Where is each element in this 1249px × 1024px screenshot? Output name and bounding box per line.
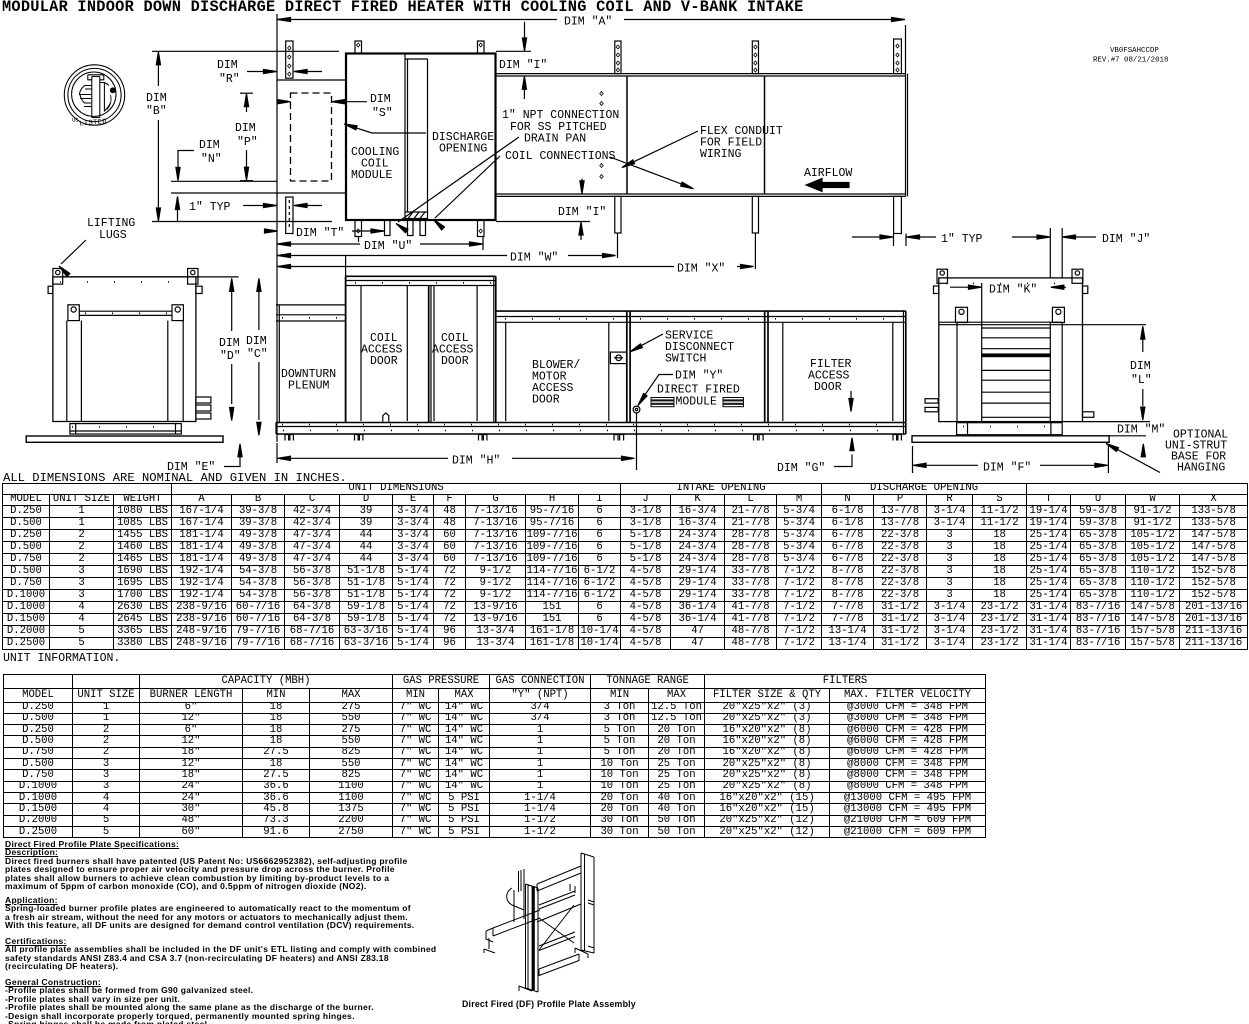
svg-text:DIM: DIM (219, 337, 240, 350)
svg-text:DOOR: DOOR (370, 355, 398, 368)
svg-text:VB0FSAHCCDP: VB0FSAHCCDP (1110, 47, 1159, 55)
svg-text:DOOR: DOOR (441, 355, 469, 368)
svg-text:OPENING: OPENING (439, 143, 487, 156)
svg-text:DIM: DIM (370, 93, 391, 106)
svg-text:DIM: DIM (235, 122, 256, 135)
svg-text:DIM "F": DIM "F" (983, 461, 1031, 474)
svg-text:HANGING: HANGING (1177, 462, 1225, 475)
svg-text:"C": "C" (247, 348, 268, 361)
svg-text:DIM: DIM (146, 92, 167, 105)
svg-text:US: US (72, 117, 79, 124)
svg-text:DIM "A": DIM "A" (564, 16, 612, 29)
svg-text:DOOR: DOOR (814, 381, 842, 394)
svg-text:DIM "H": DIM "H" (452, 455, 500, 468)
svg-text:MODULE: MODULE (676, 396, 718, 409)
svg-text:PLENUM: PLENUM (288, 380, 330, 393)
svg-text:"B": "B" (146, 105, 167, 118)
svg-text:DIM: DIM (246, 335, 267, 348)
svg-text:DIM "X": DIM "X" (677, 263, 725, 276)
svg-text:DIM "U": DIM "U" (364, 240, 412, 253)
svg-text:DIM "T": DIM "T" (296, 227, 344, 240)
svg-text:"D": "D" (220, 350, 241, 363)
svg-text:1" TYP: 1" TYP (189, 201, 231, 214)
svg-text:"N": "N" (201, 153, 222, 166)
svg-text:DIM: DIM (217, 59, 238, 72)
svg-text:DIM "J": DIM "J" (1102, 233, 1150, 246)
svg-text:DOOR: DOOR (532, 394, 560, 407)
svg-text:1" TYP: 1" TYP (941, 233, 983, 246)
svg-text:DIM "I": DIM "I" (499, 59, 547, 72)
svg-text:DRAIN PAN: DRAIN PAN (524, 133, 586, 146)
svg-text:DIM: DIM (1130, 360, 1151, 373)
svg-text:DIM "M": DIM "M" (1117, 424, 1165, 437)
svg-text:"P": "P" (237, 136, 258, 149)
svg-text:UNIT INFORMATION.: UNIT INFORMATION. (3, 652, 120, 665)
svg-text:DIM "G": DIM "G" (777, 462, 825, 475)
svg-text:REV.#7 08/21/2018: REV.#7 08/21/2018 (1093, 57, 1168, 65)
svg-text:MODULAR INDOOR DOWN DISCHARGE: MODULAR INDOOR DOWN DISCHARGE DIRECT FIR… (2, 0, 804, 16)
svg-text:LISTED: LISTED (79, 118, 107, 128)
svg-text:DIM "K": DIM "K" (989, 284, 1037, 297)
svg-text:WIRING: WIRING (700, 148, 742, 161)
svg-text:"R": "R" (219, 73, 240, 86)
svg-text:DIM "Y": DIM "Y" (675, 370, 723, 383)
svg-text:SWITCH: SWITCH (665, 353, 706, 366)
svg-text:"L": "L" (1131, 374, 1152, 387)
svg-text:DIM "W": DIM "W" (510, 252, 558, 265)
svg-text:COIL CONNECTIONS: COIL CONNECTIONS (505, 150, 616, 163)
svg-text:AIRFLOW: AIRFLOW (804, 167, 852, 180)
svg-text:DIM "I": DIM "I" (558, 206, 606, 219)
svg-text:LUGS: LUGS (99, 229, 127, 242)
svg-text:DIM: DIM (199, 139, 220, 152)
svg-text:MODULE: MODULE (351, 169, 393, 182)
svg-text:"S": "S" (372, 107, 393, 120)
